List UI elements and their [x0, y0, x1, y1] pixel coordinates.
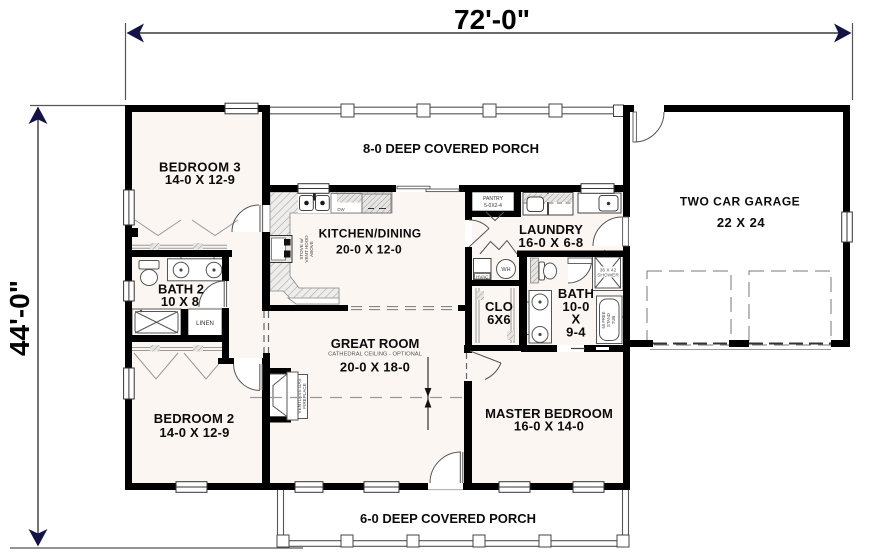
svg-text:14-0 X 12-9: 14-0 X 12-9 [159, 425, 229, 440]
svg-text:72'-0": 72'-0" [454, 4, 530, 35]
svg-text:22 X 24: 22 X 24 [717, 215, 766, 230]
svg-text:16-0 X 6-8: 16-0 X 6-8 [518, 235, 583, 250]
svg-text:BEDROOM 2: BEDROOM 2 [154, 411, 235, 426]
svg-text:20-0 X 18-0: 20-0 X 18-0 [340, 360, 410, 375]
svg-text:PANTRY: PANTRY [483, 196, 503, 202]
svg-text:9-4: 9-4 [566, 325, 586, 340]
svg-text:5-0X2-4: 5-0X2-4 [484, 203, 502, 209]
svg-text:DW: DW [337, 207, 345, 212]
svg-text:10 X 8: 10 X 8 [161, 294, 199, 309]
svg-text:6-0 DEEP COVERED PORCH: 6-0 DEEP COVERED PORCH [360, 511, 536, 526]
svg-text:8-0 DEEP COVERED PORCH: 8-0 DEEP COVERED PORCH [363, 141, 539, 156]
svg-text:FIREPLACE: FIREPLACE [302, 383, 307, 409]
svg-text:SHOWER: SHOWER [597, 273, 619, 279]
svg-text:WH: WH [501, 267, 510, 273]
svg-text:KITCHEN/DINING: KITCHEN/DINING [319, 227, 422, 241]
svg-text:14-0 X 12-9: 14-0 X 12-9 [165, 172, 235, 187]
svg-text:6X6: 6X6 [487, 312, 511, 327]
svg-text:ABOVE: ABOVE [309, 241, 314, 257]
svg-text:16-0 X 14-0: 16-0 X 14-0 [514, 419, 584, 434]
svg-text:TUB: TUB [611, 316, 616, 325]
svg-text:44'-0": 44'-0" [4, 280, 35, 356]
svg-text:TWO CAR GARAGE: TWO CAR GARAGE [680, 195, 800, 209]
svg-text:LINEN: LINEN [196, 321, 214, 327]
svg-text:GREAT ROOM: GREAT ROOM [331, 336, 420, 351]
svg-text:20-0 X 12-0: 20-0 X 12-0 [336, 243, 402, 257]
svg-text:HVAC: HVAC [476, 274, 489, 279]
svg-text:CATHEDRAL CEILING - OPTIONAL: CATHEDRAL CEILING - OPTIONAL [328, 352, 423, 358]
